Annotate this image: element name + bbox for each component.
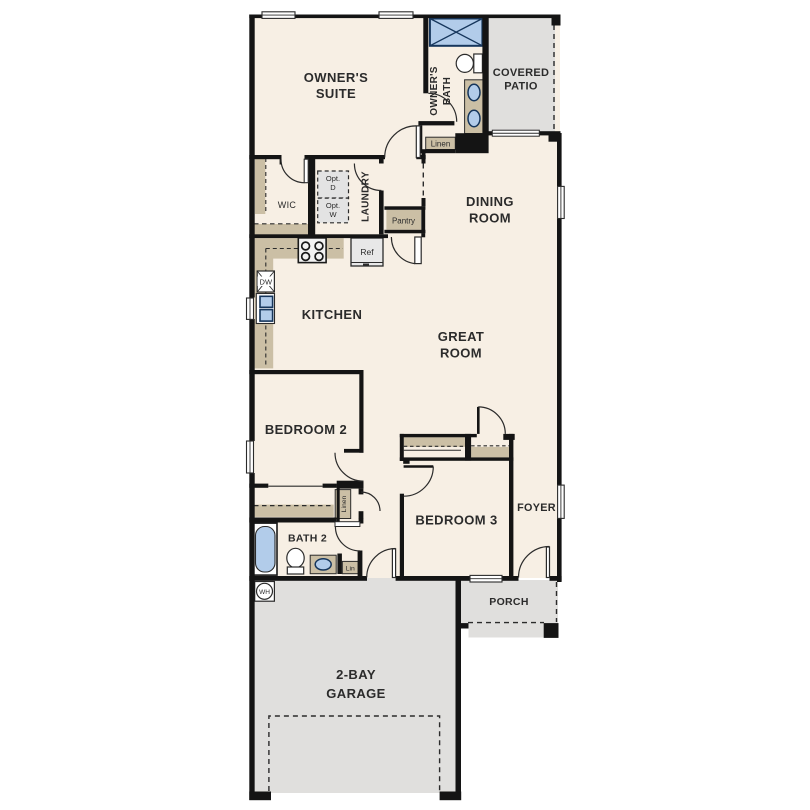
svg-text:W: W	[329, 210, 337, 219]
svg-text:ROOM: ROOM	[440, 346, 482, 361]
svg-text:ROOM: ROOM	[469, 211, 511, 226]
svg-text:BATH 2: BATH 2	[288, 533, 327, 545]
svg-text:PATIO: PATIO	[504, 81, 538, 93]
svg-text:Pantry: Pantry	[392, 217, 415, 226]
svg-text:BATH: BATH	[442, 77, 453, 105]
svg-text:GREAT: GREAT	[438, 329, 485, 344]
svg-text:Lin: Lin	[346, 566, 355, 573]
svg-text:OWNER'S: OWNER'S	[429, 66, 440, 116]
svg-text:Linen: Linen	[341, 495, 348, 512]
svg-text:Opt.: Opt.	[326, 174, 340, 183]
svg-text:PORCH: PORCH	[489, 596, 528, 608]
svg-text:Ref: Ref	[360, 247, 374, 257]
svg-text:OWNER'S: OWNER'S	[304, 70, 368, 85]
svg-text:LAUNDRY: LAUNDRY	[361, 171, 372, 222]
svg-text:D: D	[330, 183, 336, 192]
svg-text:BEDROOM 2: BEDROOM 2	[265, 422, 347, 437]
svg-text:WH: WH	[259, 589, 270, 596]
svg-text:DW: DW	[260, 278, 273, 287]
svg-text:DINING: DINING	[466, 194, 514, 209]
svg-text:COVERED: COVERED	[493, 67, 550, 79]
svg-text:KITCHEN: KITCHEN	[302, 307, 363, 322]
svg-text:Linen: Linen	[431, 140, 451, 149]
svg-text:GARAGE: GARAGE	[326, 686, 385, 701]
svg-text:SUITE: SUITE	[316, 86, 356, 101]
svg-text:Opt.: Opt.	[326, 201, 340, 210]
svg-text:WIC: WIC	[278, 200, 297, 210]
svg-text:BEDROOM 3: BEDROOM 3	[415, 513, 497, 528]
svg-text:FOYER: FOYER	[517, 502, 556, 514]
svg-text:2-BAY: 2-BAY	[336, 667, 376, 682]
